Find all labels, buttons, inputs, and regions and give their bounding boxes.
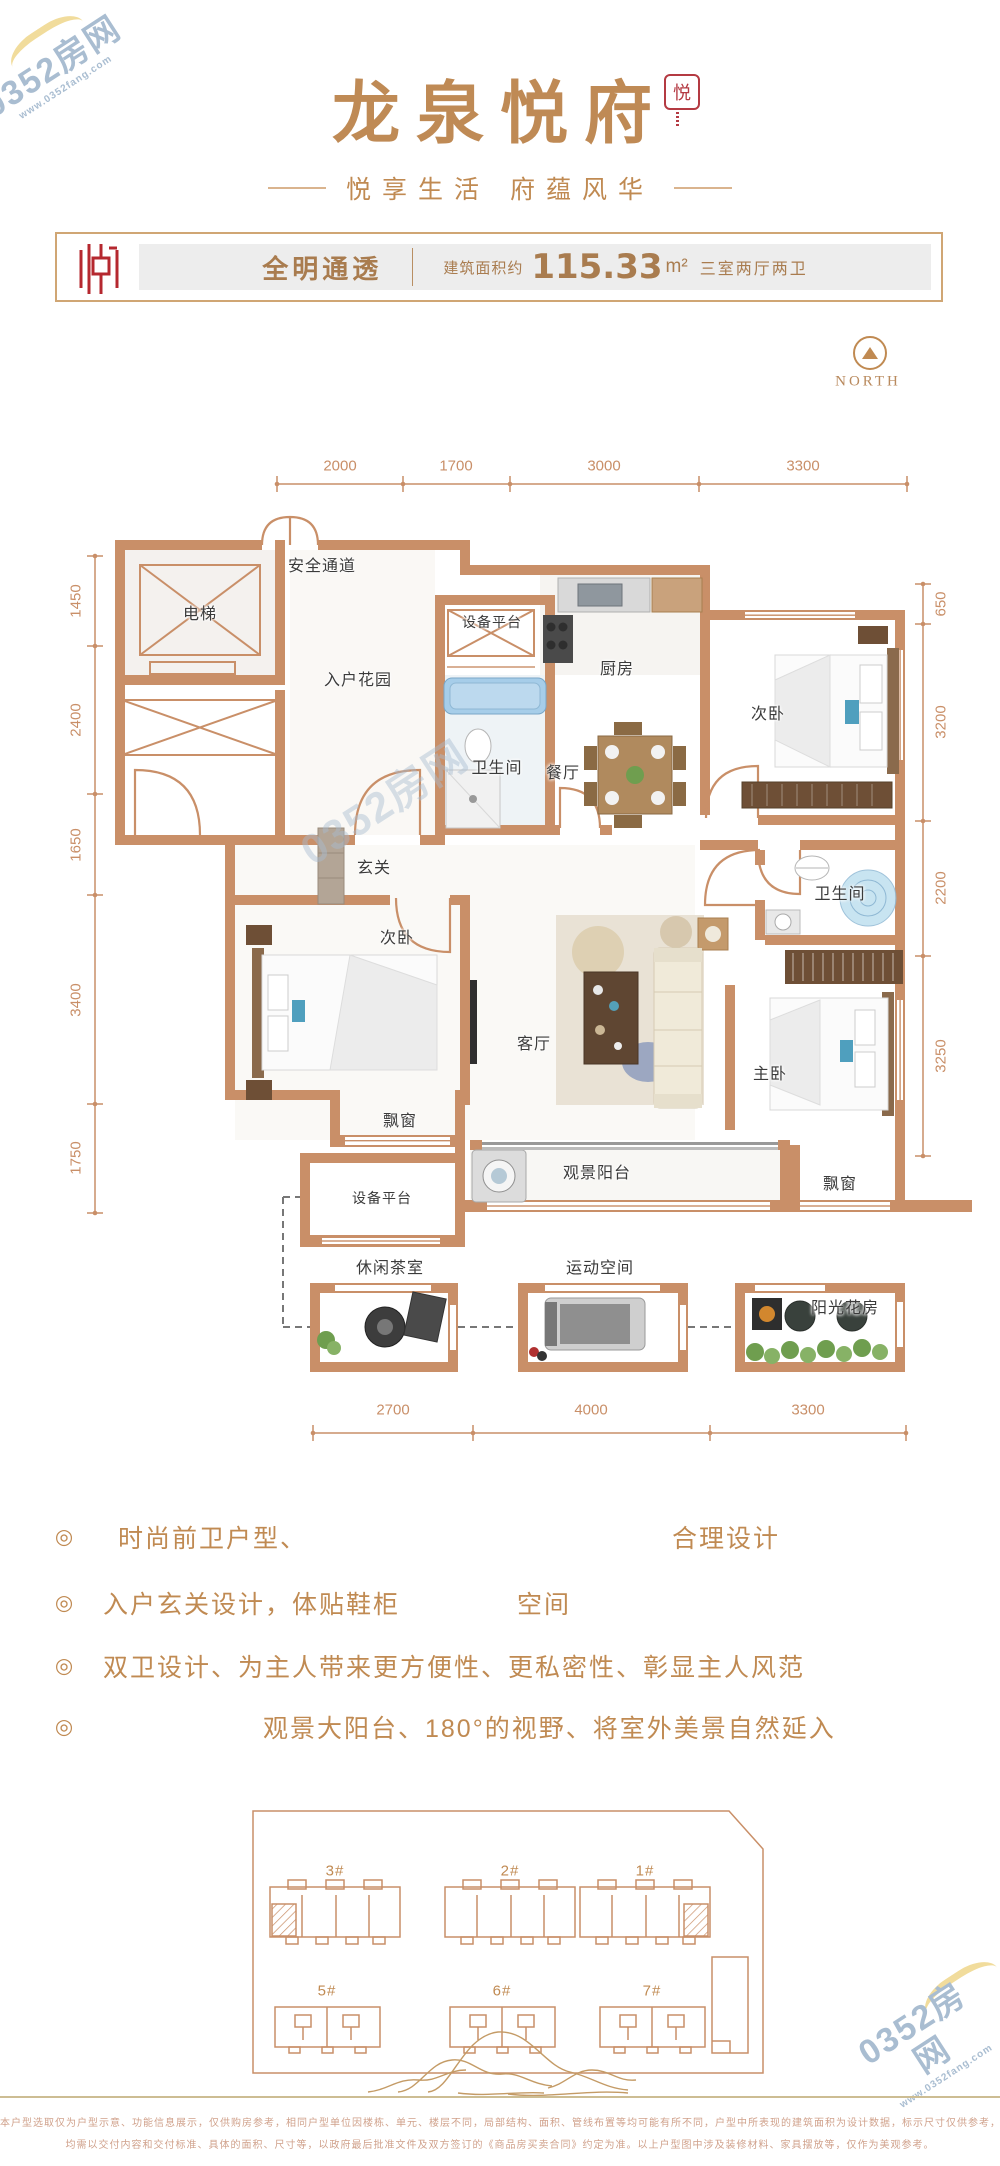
dim-left-3: 1650 <box>68 828 85 861</box>
room-label-tea-room: 休闲茶室 <box>356 1254 424 1278</box>
room-label-balcony: 观景阳台 <box>563 1159 631 1183</box>
room-label-elevator: 电梯 <box>183 600 217 624</box>
subtitle-dash-right <box>674 187 732 189</box>
feature-2-text: 入户玄关设计，体贴鞋柜 <box>103 1585 400 1621</box>
disclaimer-line-2: 均需以交付内容和交付标准、具体的面积、尺寸等，以政府最后批准文件及双方签订的《商… <box>0 2136 1000 2151</box>
area-label: 建筑面积约 <box>443 257 523 278</box>
subtitle-right: 府蕴风华 <box>510 170 654 206</box>
site-plan <box>253 1811 763 2073</box>
room-label-bay-right: 飘窗 <box>823 1170 857 1194</box>
room-label-dining: 餐厅 <box>546 759 580 783</box>
dim-top-1: 2000 <box>323 458 356 475</box>
feature-4-text: 观景大阳台、180°的视野、将室外美景自然延入 <box>263 1709 836 1745</box>
dashed-connectors <box>283 1197 735 1327</box>
dim-left-2: 2400 <box>68 703 85 736</box>
room-label-entry-garden: 入户花园 <box>324 666 392 690</box>
feature-bullet-icon: ◎ <box>55 1654 73 1679</box>
room-label-bedroom-top-right: 次卧 <box>751 700 785 724</box>
dim-top-2: 1700 <box>439 458 472 475</box>
brand-seal-icon <box>75 242 125 294</box>
stairwell-icon <box>122 700 278 755</box>
building-label-3: 3# <box>326 1863 345 1880</box>
page-title: 龙泉悦府 <box>0 58 1000 157</box>
feature-1-text-b: 合理设计 <box>672 1519 780 1555</box>
dim-top-3: 3000 <box>587 458 620 475</box>
building-label-2: 2# <box>501 1863 520 1880</box>
dim-left-4: 3400 <box>68 983 85 1016</box>
room-label-equip-bottom: 设备平台 <box>352 1188 412 1208</box>
room-label-bay-left: 飘窗 <box>383 1107 417 1131</box>
feature-bullet-icon: ◎ <box>55 1715 73 1740</box>
north-icon <box>853 336 887 370</box>
dim-bottom-2: 4000 <box>574 1402 607 1419</box>
feature-bullet-icon: ◎ <box>55 1525 73 1550</box>
area-unit: m² <box>666 256 688 278</box>
dim-right-1: 650 <box>933 591 950 616</box>
title-seal: 悦 <box>664 74 700 110</box>
room-label-equip-top: 设备平台 <box>462 612 522 632</box>
room-label-bathroom-right: 卫生间 <box>814 880 865 904</box>
info-bar: 全明通透 建筑面积约 115.33 m² 三室两厅两卫 <box>55 232 943 302</box>
info-divider <box>412 248 413 286</box>
subtitle-dash-left <box>268 187 326 189</box>
dim-right-3: 2200 <box>933 871 950 904</box>
poster-page: 0352房网 www.0352fang.com 0352房网 0352房网 ww… <box>0 0 1000 2166</box>
building-label-6: 6# <box>493 1983 512 2000</box>
title-seal-tail <box>676 112 679 128</box>
room-label-bathroom-top: 卫生间 <box>471 754 522 778</box>
north-label: NORTH <box>835 374 901 391</box>
area-value: 115.33 <box>531 247 662 287</box>
dim-bottom-1: 2700 <box>376 1402 409 1419</box>
rooms-summary: 三室两厅两卫 <box>700 255 808 279</box>
building-label-7: 7# <box>643 1983 662 2000</box>
info-tag: 全明通透 <box>262 249 382 286</box>
dim-right-4: 3250 <box>933 1039 950 1072</box>
feature-bullet-icon: ◎ <box>55 1591 73 1616</box>
room-label-bedroom-left: 次卧 <box>380 924 414 948</box>
dim-top-4: 3300 <box>786 458 819 475</box>
room-label-sun-room: 阳光花房 <box>811 1294 879 1318</box>
building-label-5: 5# <box>318 1983 337 2000</box>
room-label-hallway: 玄关 <box>357 854 391 878</box>
room-label-living: 客厅 <box>517 1030 551 1054</box>
dim-right-2: 3200 <box>933 705 950 738</box>
dim-bottom-3: 3300 <box>791 1402 824 1419</box>
floorplan-art <box>0 0 1000 2166</box>
dim-left-5: 1750 <box>68 1141 85 1174</box>
subtitle: 悦享生活 府蕴风华 <box>0 170 1000 206</box>
disclaimer-line-1: 本户型选取仅为户型示意、功能信息展示，仅供购房参考，相同户型单位因楼栋、单元、楼… <box>0 2114 1000 2129</box>
dim-left-1: 1450 <box>68 584 85 617</box>
feature-1-text: 时尚前卫户型、 <box>118 1519 307 1555</box>
north-triangle-icon <box>862 347 878 359</box>
room-label-sport-space: 运动空间 <box>566 1254 634 1278</box>
room-label-safe-passage: 安全通道 <box>288 552 356 576</box>
title-seal-char: 悦 <box>673 79 691 105</box>
feature-3-text: 双卫设计、为主人带来更方便性、更私密性、彰显主人风范 <box>103 1648 805 1684</box>
footer-divider <box>0 2096 1000 2098</box>
building-label-1: 1# <box>636 1863 655 1880</box>
subtitle-left: 悦享生活 <box>346 170 490 206</box>
room-label-kitchen: 厨房 <box>600 655 634 679</box>
info-bar-content: 全明通透 建筑面积约 115.33 m² 三室两厅两卫 <box>139 244 931 290</box>
room-label-master-bedroom: 主卧 <box>753 1060 787 1084</box>
feature-2-text-b: 空间 <box>517 1585 571 1621</box>
